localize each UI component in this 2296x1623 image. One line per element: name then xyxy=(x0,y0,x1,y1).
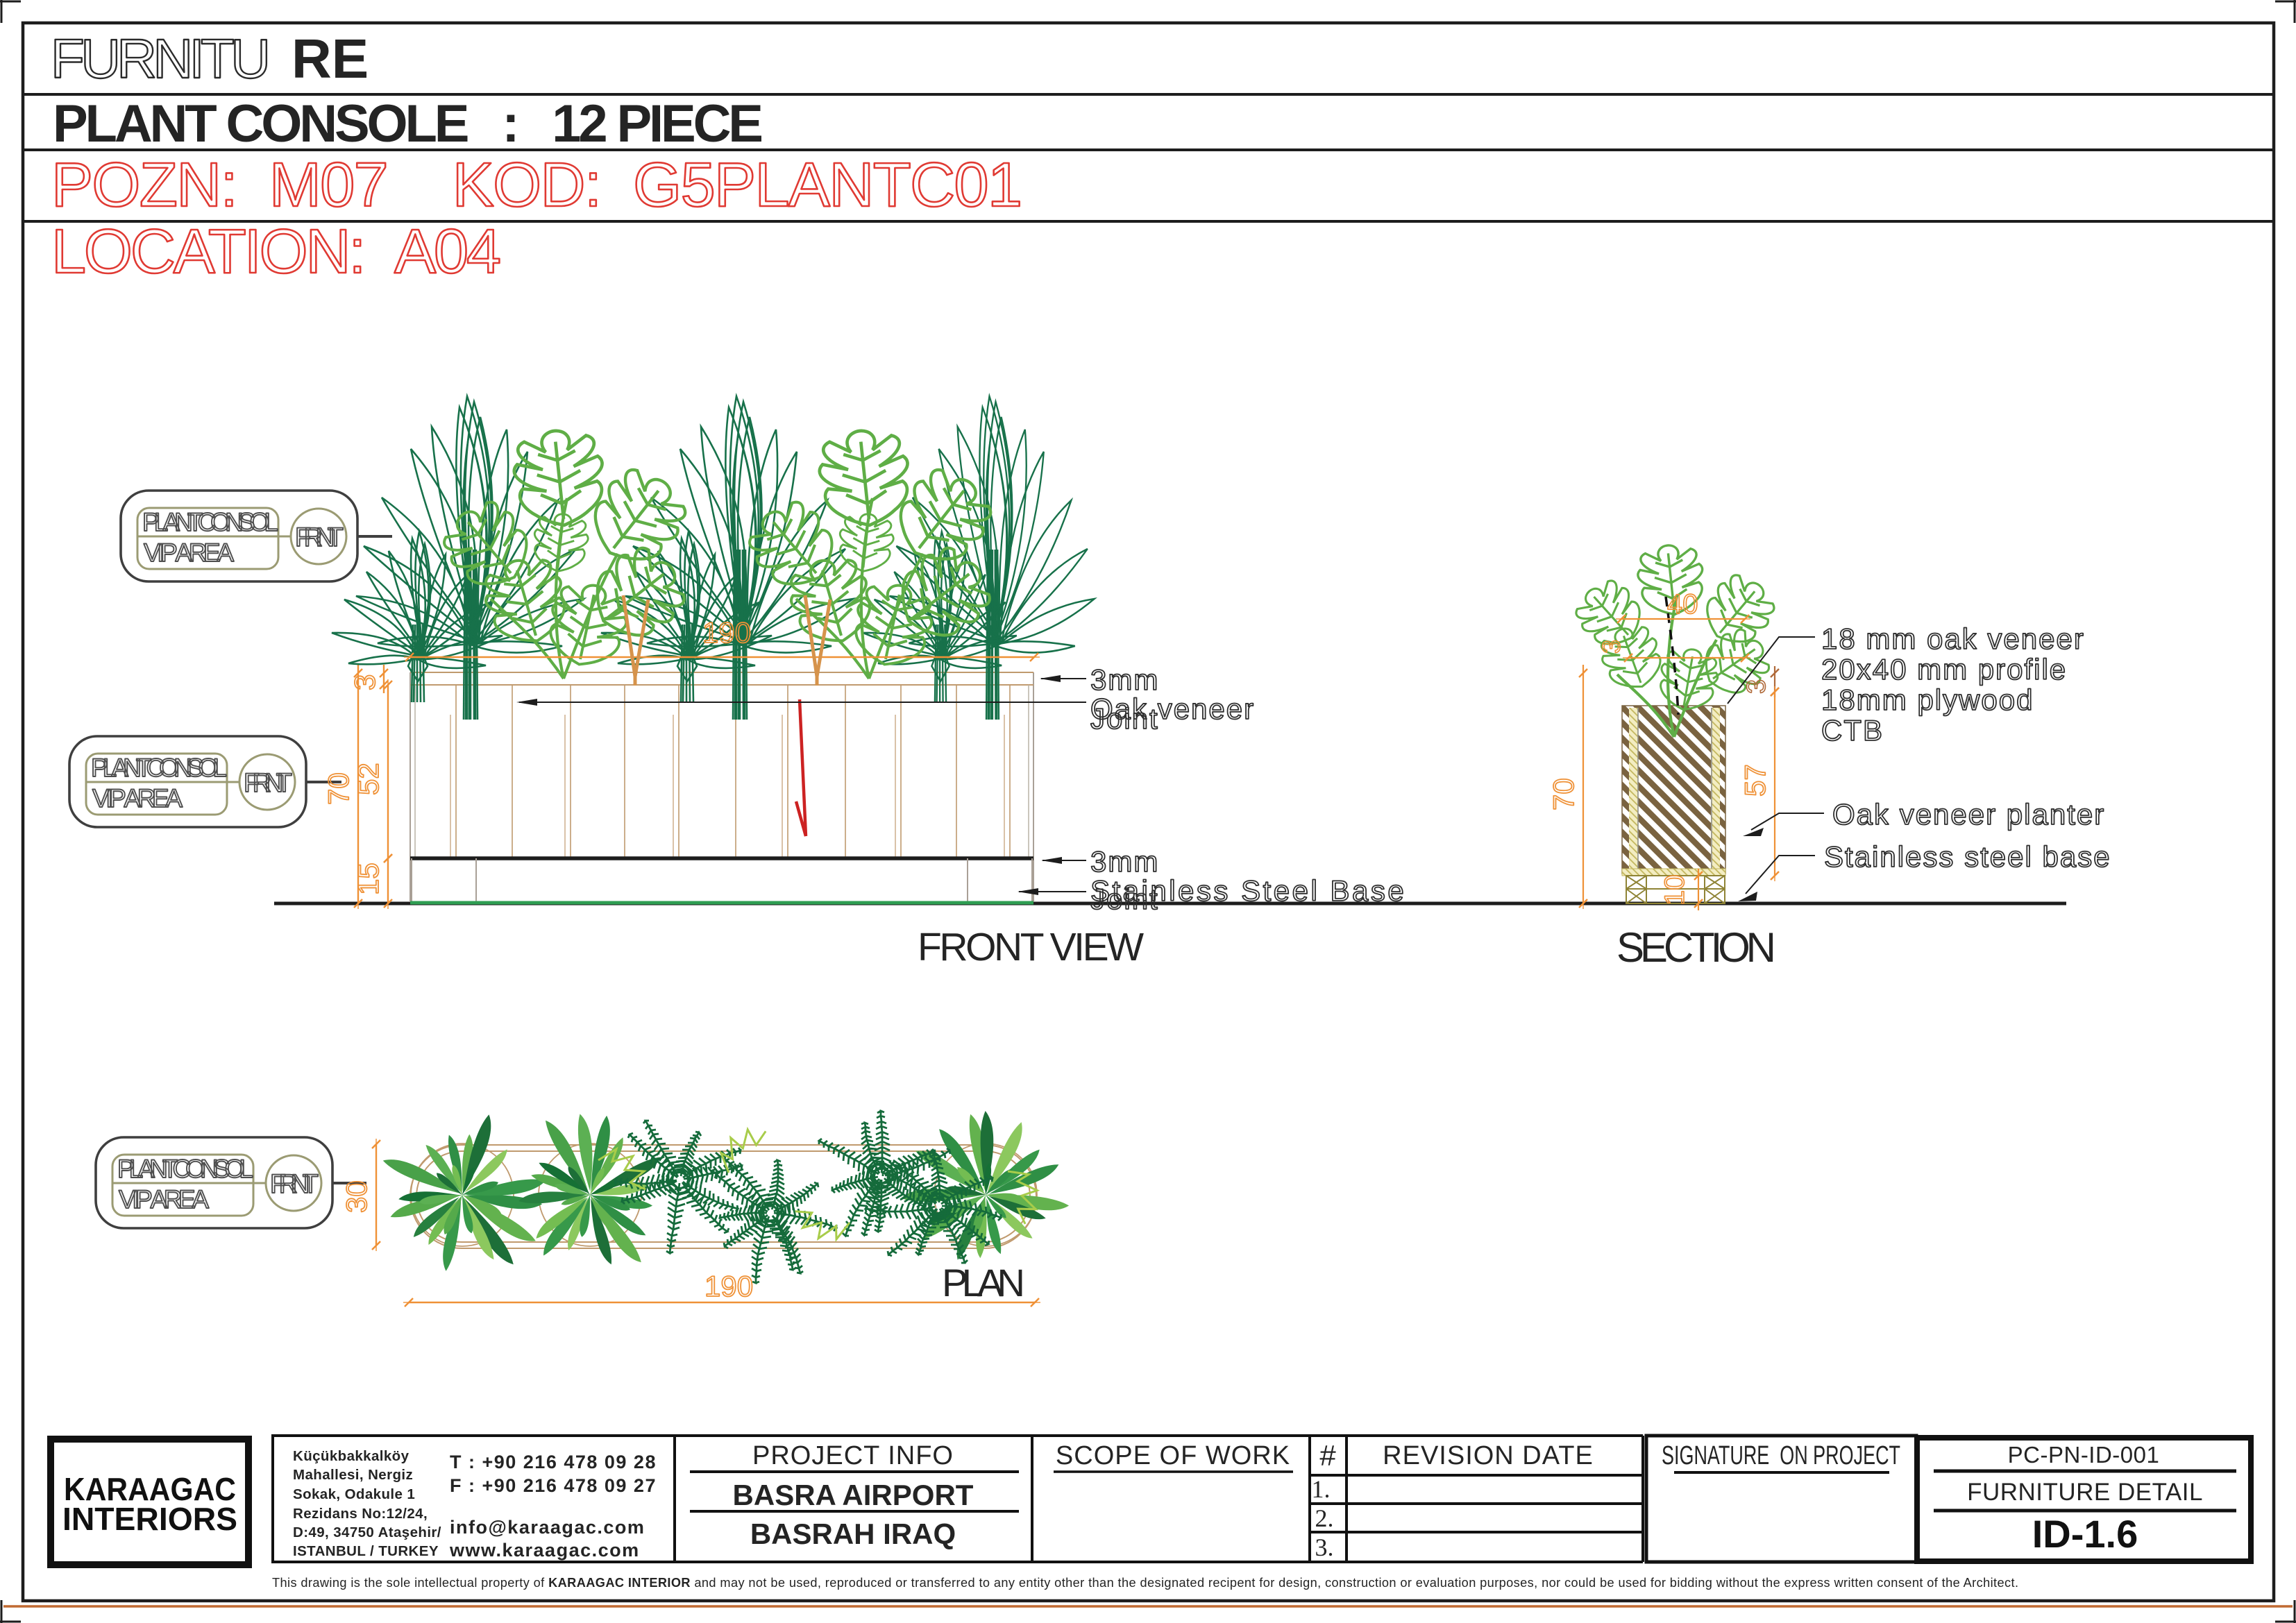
svg-text:REVISION DATE: REVISION DATE xyxy=(1383,1441,1594,1470)
svg-text:30: 30 xyxy=(340,1180,373,1213)
svg-text:FRNT: FRNT xyxy=(244,769,292,798)
svg-text:D:49, 34750 Ataşehir/: D:49, 34750 Ataşehir/ xyxy=(293,1524,441,1540)
svg-text:1.: 1. xyxy=(1312,1475,1331,1503)
svg-text:Oak veneer planter: Oak veneer planter xyxy=(1832,798,2105,831)
svg-text:PLANTCONSOL: PLANTCONSOL xyxy=(142,508,278,536)
svg-text:VIP AREA: VIP AREA xyxy=(144,538,234,567)
svg-text:70: 70 xyxy=(1547,778,1580,810)
svg-text:3: 3 xyxy=(348,674,381,690)
svg-text:PLANT CONSOLE : 12 PIECE: PLANT CONSOLE : 12 PIECE xyxy=(53,94,763,153)
svg-text:ISTANBUL / TURKEY: ISTANBUL / TURKEY xyxy=(293,1543,439,1559)
svg-text:10: 10 xyxy=(1660,875,1690,906)
svg-text:FURNITU: FURNITU xyxy=(51,28,271,90)
svg-text:18 mm oak veneer: 18 mm oak veneer xyxy=(1821,622,2085,655)
svg-text:INTERIORS: INTERIORS xyxy=(62,1501,237,1537)
svg-text:F : +90 216 478 09 27: F : +90 216 478 09 27 xyxy=(450,1475,657,1496)
svg-text:70: 70 xyxy=(322,772,355,805)
svg-text:PLANTCONSOL: PLANTCONSOL xyxy=(91,754,227,782)
svg-text:www.karaagac.com: www.karaagac.com xyxy=(449,1540,640,1561)
svg-text:2.: 2. xyxy=(1315,1504,1334,1532)
svg-text:FRNT: FRNT xyxy=(295,523,344,552)
svg-text:info@karaagac.com: info@karaagac.com xyxy=(450,1517,645,1538)
svg-text:FRONT VIEW: FRONT VIEW xyxy=(918,925,1144,969)
svg-text:57: 57 xyxy=(1739,764,1771,797)
svg-text:T : +90 216 478 09 28: T : +90 216 478 09 28 xyxy=(450,1452,657,1472)
svg-text:LOCATION: A04: LOCATION: A04 xyxy=(51,217,501,287)
svg-text:FRNT: FRNT xyxy=(270,1170,319,1199)
svg-text:BASRA AIRPORT: BASRA AIRPORT xyxy=(733,1479,974,1511)
svg-text:3: 3 xyxy=(1742,679,1771,694)
svg-text:3: 3 xyxy=(1597,640,1626,654)
svg-text:SECTION: SECTION xyxy=(1617,924,1776,971)
svg-text:RE: RE xyxy=(292,28,369,90)
svg-text:52: 52 xyxy=(352,763,385,795)
svg-text:VIP AREA: VIP AREA xyxy=(92,784,183,813)
svg-text:Rezidans No:12/24,: Rezidans No:12/24, xyxy=(293,1506,428,1522)
svg-text:This drawing is the sole intel: This drawing is the sole intellectual pr… xyxy=(272,1576,2018,1590)
svg-text:20x40 mm profile: 20x40 mm profile xyxy=(1821,653,2067,686)
svg-text:3.: 3. xyxy=(1315,1533,1334,1561)
svg-text:Sokak, Odakule 1: Sokak, Odakule 1 xyxy=(293,1486,415,1502)
svg-text:BASRAH IRAQ: BASRAH IRAQ xyxy=(750,1518,956,1550)
svg-text:190: 190 xyxy=(704,1270,753,1302)
svg-text:3mm: 3mm xyxy=(1090,663,1159,696)
svg-text:PC-PN-ID-001: PC-PN-ID-001 xyxy=(2008,1442,2160,1468)
svg-text:18mm plywood: 18mm plywood xyxy=(1821,683,2034,716)
svg-text:VIP AREA: VIP AREA xyxy=(119,1185,209,1214)
svg-text:POZN: M07 KOD: G5PLANTC01: POZN: M07 KOD: G5PLANTC01 xyxy=(51,151,1022,220)
svg-text:Joint: Joint xyxy=(1090,702,1159,735)
svg-text:Küçükbakkalköy: Küçükbakkalköy xyxy=(293,1448,410,1464)
svg-text:Mahallesi, Nergiz: Mahallesi, Nergiz xyxy=(293,1467,413,1483)
svg-text:SCOPE OF WORK: SCOPE OF WORK xyxy=(1056,1441,1290,1470)
svg-text:Joint: Joint xyxy=(1090,883,1159,915)
svg-text:#: # xyxy=(1319,1439,1336,1472)
svg-text:40: 40 xyxy=(1667,589,1698,620)
svg-text:190: 190 xyxy=(702,616,751,649)
svg-text:Stainless steel base: Stainless steel base xyxy=(1824,840,2111,873)
svg-text:CTB: CTB xyxy=(1821,714,1884,747)
svg-text:15: 15 xyxy=(352,863,385,895)
svg-text:PLAN: PLAN xyxy=(942,1261,1025,1305)
svg-text:PLANTCONSOL: PLANTCONSOL xyxy=(117,1155,253,1183)
svg-text:PROJECT INFO: PROJECT INFO xyxy=(752,1441,954,1470)
svg-text:SIGNATURE ON PROJECT: SIGNATURE ON PROJECT xyxy=(1662,1441,1900,1470)
svg-text:3mm: 3mm xyxy=(1090,845,1159,878)
svg-text:ID-1.6: ID-1.6 xyxy=(2032,1512,2138,1556)
svg-text:FURNITURE DETAIL: FURNITURE DETAIL xyxy=(1967,1479,2203,1506)
